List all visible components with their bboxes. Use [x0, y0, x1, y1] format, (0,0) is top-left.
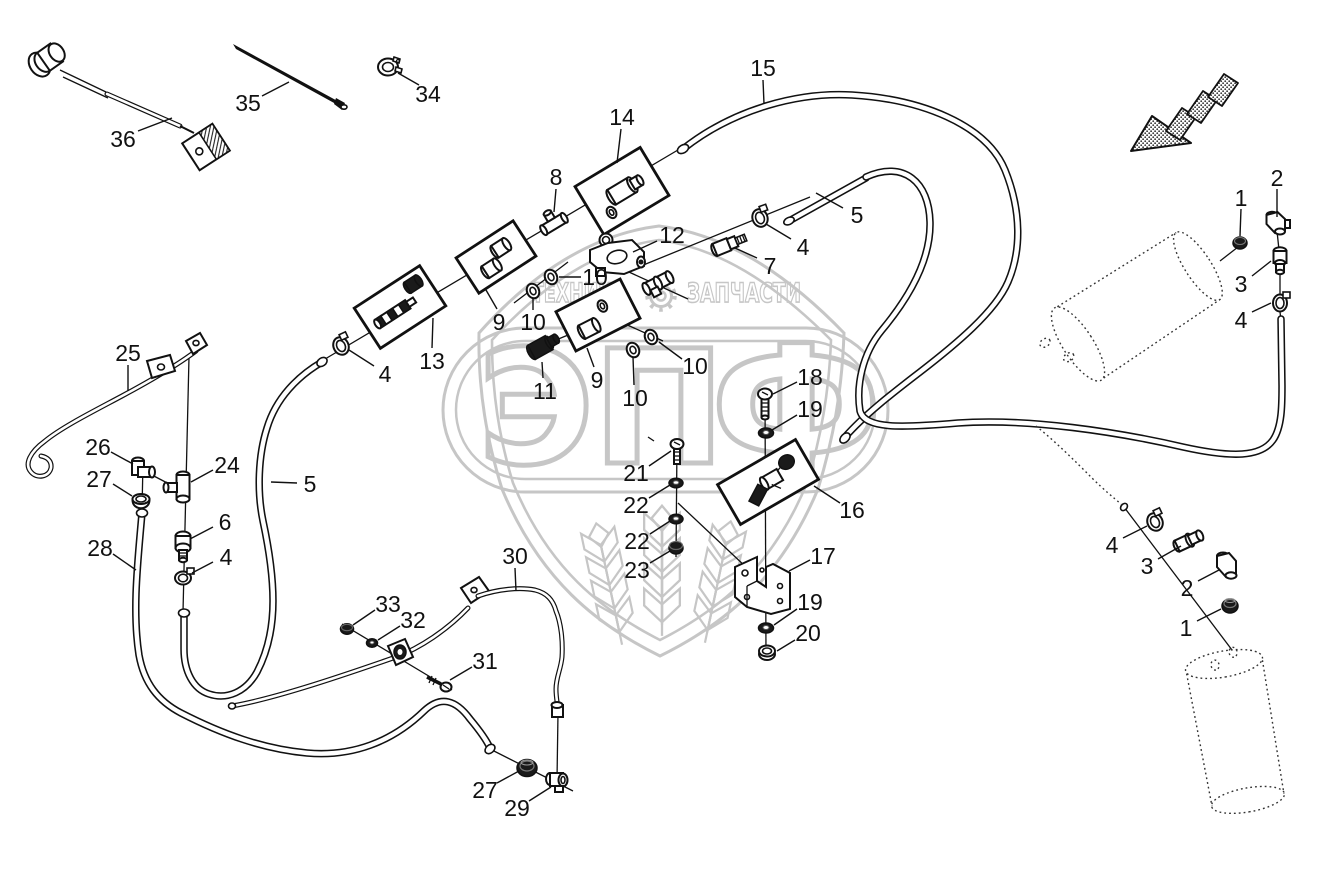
leader-line-3 [1158, 546, 1181, 559]
leader-line-20 [777, 640, 795, 651]
part-number-22: 22 [624, 528, 650, 554]
part-number-23: 23 [624, 557, 650, 583]
part-6-fitting [176, 532, 191, 563]
part-number-27: 27 [472, 777, 498, 803]
part-32-washer [367, 639, 378, 647]
part-number-4: 4 [379, 361, 392, 387]
part-24-tee [164, 472, 190, 503]
part-number-12: 12 [659, 222, 685, 248]
part-number-4: 4 [220, 544, 233, 570]
part-number-35: 35 [235, 90, 261, 116]
leader-line-30 [515, 568, 516, 591]
part-number-18: 18 [797, 364, 823, 390]
part-number-28: 28 [87, 535, 113, 561]
leader-line-33 [353, 610, 375, 625]
leader-line-4 [192, 562, 213, 573]
part-number-9: 9 [591, 367, 604, 393]
part-number-6: 6 [219, 509, 232, 535]
leader-line-35 [262, 82, 289, 96]
part-9-plate-a [456, 221, 536, 293]
part-number-22: 22 [623, 492, 649, 518]
part-20-nut [759, 646, 775, 661]
part-29-fitting [546, 773, 568, 792]
part-27-nut-bottom [517, 760, 537, 777]
part-number-2: 2 [1271, 165, 1284, 191]
leader-line-5 [271, 482, 297, 483]
leader-line-4 [349, 350, 374, 366]
part-number-20: 20 [795, 620, 821, 646]
leader-line-9 [486, 290, 497, 309]
part-26-elbow [132, 458, 155, 478]
part-number-10: 10 [682, 353, 708, 379]
part-number-31: 31 [472, 648, 498, 674]
part-number-1: 1 [1235, 185, 1248, 211]
part-number-32: 32 [400, 607, 426, 633]
leader-line-24 [191, 470, 213, 482]
direction-arrow [1131, 74, 1238, 151]
leader-line-28 [113, 554, 136, 570]
part-number-10: 10 [622, 385, 648, 411]
leader-line-11 [542, 362, 543, 378]
part-8-fitting-upper [534, 204, 570, 237]
hidden-hose-dotted [1036, 426, 1121, 504]
part-number-17: 17 [810, 543, 836, 569]
leader-line-4 [1252, 303, 1271, 312]
part-31-screw [427, 676, 452, 692]
part-number-5: 5 [304, 471, 317, 497]
tank-cylinder-top-right [1027, 223, 1232, 398]
part-number-29: 29 [504, 795, 530, 821]
part-number-2: 2 [1181, 575, 1194, 601]
leader-line-10 [633, 357, 634, 385]
part-number-10: 10 [520, 309, 546, 335]
leader-line-3 [1252, 261, 1271, 276]
leader-line-4 [766, 224, 791, 239]
part-number-27: 27 [86, 466, 112, 492]
part-23-nut [669, 542, 683, 555]
part-number-5: 5 [851, 202, 864, 228]
leader-line-17 [789, 560, 810, 571]
part-number-21: 21 [623, 460, 649, 486]
part-number-33: 33 [375, 591, 401, 617]
part-number-14: 14 [609, 104, 635, 130]
leader-line-15 [763, 80, 764, 104]
part-number-3: 3 [1141, 553, 1154, 579]
part-number-24: 24 [214, 452, 240, 478]
part-number-34: 34 [415, 81, 441, 107]
watermark-tagline-right: ЗАПЧАСТИ [687, 278, 801, 309]
part-number-4: 4 [797, 234, 810, 260]
part-14-plate [575, 147, 669, 234]
leader-line-27 [113, 484, 132, 496]
part-number-9: 9 [493, 309, 506, 335]
part-number-4: 4 [1235, 307, 1248, 333]
leader-line-27 [497, 771, 519, 783]
leader-line-36 [138, 118, 172, 131]
leader-line-1 [1240, 209, 1241, 236]
leader-line-31 [450, 667, 472, 680]
part-number-30: 30 [502, 543, 528, 569]
watermark-letter-2: П [593, 317, 725, 501]
part-number-19: 19 [797, 589, 823, 615]
leader-line-6 [190, 527, 213, 539]
part-27-cap [133, 494, 150, 508]
leader-line-22 [650, 521, 670, 534]
top-right-stack [1233, 212, 1290, 274]
leader-line-32 [378, 626, 400, 640]
part-number-10: 10 [582, 264, 608, 290]
leader-line-29 [529, 787, 551, 801]
part-number-11: 11 [533, 378, 557, 404]
tank-cylinder-bottom-right [1183, 642, 1288, 818]
leader-line-2 [1198, 570, 1219, 581]
part-number-19: 19 [797, 396, 823, 422]
part-number-8: 8 [550, 164, 563, 190]
part-number-16: 16 [839, 497, 865, 523]
part-33-nut [341, 624, 354, 634]
part-number-15: 15 [750, 55, 776, 81]
part-number-36: 36 [110, 126, 136, 152]
part-number-4: 4 [1106, 532, 1119, 558]
hose-loop-right [859, 171, 1282, 454]
part-number-13: 13 [419, 348, 445, 374]
hose-5-left [184, 362, 322, 696]
diagram-page: ТЕХНИКА ЗАПЧАСТИ Э П Ф [0, 0, 1323, 875]
leader-line-13 [432, 318, 433, 348]
exploded-parts-diagram: ТЕХНИКА ЗАПЧАСТИ Э П Ф [0, 0, 1323, 875]
part-number-25: 25 [115, 340, 141, 366]
part-number-3: 3 [1235, 271, 1248, 297]
part-number-7: 7 [764, 253, 777, 279]
part-number-26: 26 [85, 434, 111, 460]
leader-line-26 [111, 452, 133, 464]
leader-line-8 [554, 189, 556, 212]
part-17-bracket [735, 557, 790, 614]
part-number-1: 1 [1180, 615, 1193, 641]
